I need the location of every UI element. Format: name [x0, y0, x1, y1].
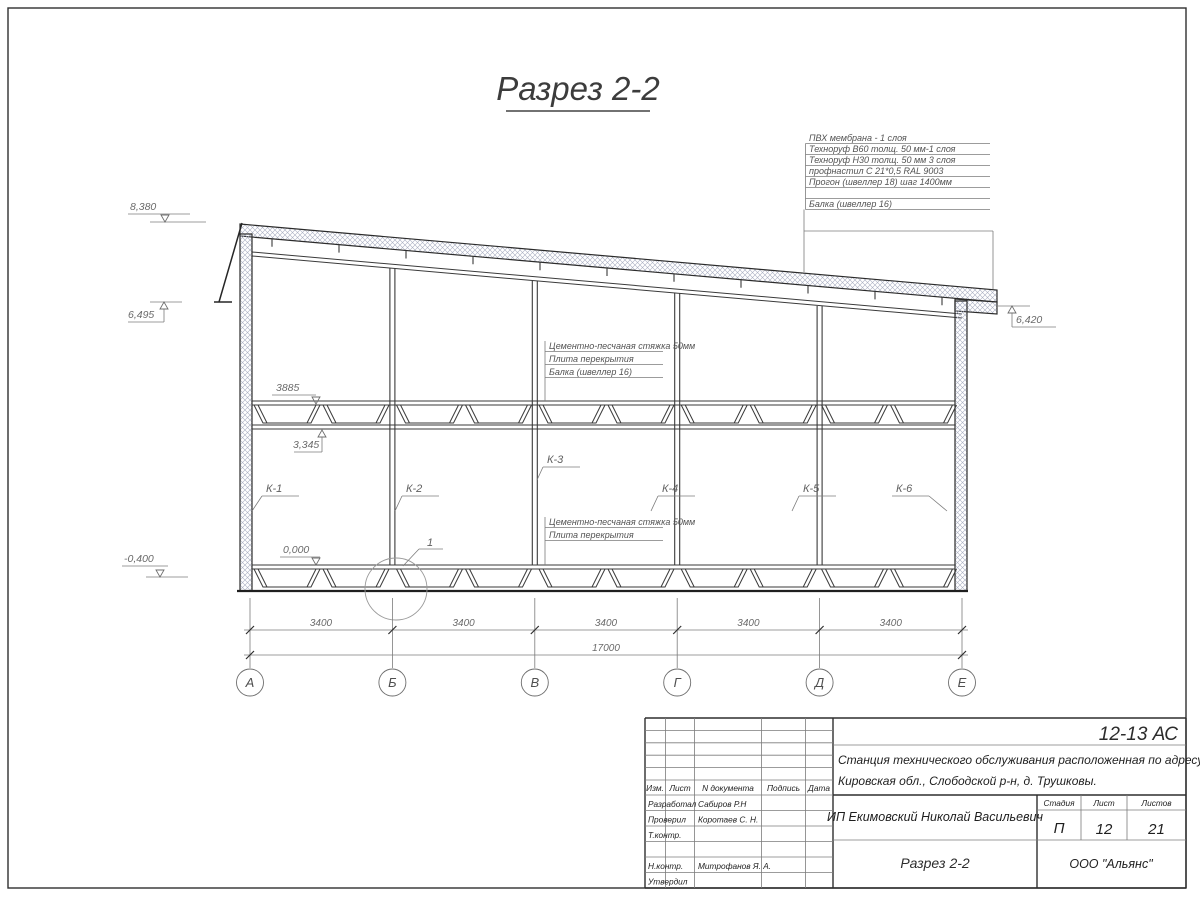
sheets-value: 21	[1147, 821, 1165, 838]
axis-label: В	[530, 675, 539, 690]
col-header-date: Дата	[807, 783, 830, 793]
floor-spec-callout: Цементно-песчаная стяжка 50мм Плита пере…	[545, 517, 695, 565]
axis-label: А	[245, 675, 255, 690]
sheet-header: Лист	[1092, 798, 1114, 808]
column-B	[390, 268, 395, 565]
roof-spec-line: Техноруф В60 толщ. 50 мм-1 слоя	[809, 144, 956, 154]
section-title: Разрез 2-2	[496, 70, 660, 111]
ceiling-spec-line: Балка (швеллер 16)	[549, 367, 632, 377]
left-eave-trim	[214, 223, 242, 302]
dim-bay: 3400	[737, 618, 760, 629]
stage-value: П	[1054, 820, 1065, 837]
ceiling-spec-line: Цементно-песчаная стяжка 50мм	[549, 341, 695, 351]
role-label: Разработал	[648, 799, 697, 809]
roof-band	[240, 224, 997, 302]
column-D	[817, 306, 822, 565]
dim-bay: 3400	[452, 618, 475, 629]
drawing-sheet: Разрез 2-2 ПВХ мембрана - 1 слоя Технору…	[0, 0, 1200, 900]
role-name: Коротаев С. Н.	[698, 815, 758, 825]
axis-bubbles: А Б В Г Д Е	[237, 669, 976, 696]
ceiling-screed	[252, 401, 955, 405]
column-label-k3: К-3	[547, 454, 564, 466]
sheets-header: Листов	[1140, 798, 1172, 808]
elevation-eave-left: 6,495	[128, 309, 154, 321]
elevation-beam: 3,345	[293, 439, 319, 451]
role-label: Проверил	[648, 815, 686, 825]
elevation-floor: 0,000	[283, 544, 309, 556]
role-name: Митрофанов Я. А.	[698, 861, 771, 871]
title-block: 12-13 АС Станция технического обслуживан…	[645, 718, 1200, 888]
floor-spec-line: Плита перекрытия	[549, 530, 634, 540]
purlin-ticks	[272, 239, 942, 305]
elevation-ceiling: 3885	[276, 382, 300, 394]
col-header-doc: N документа	[702, 783, 754, 793]
column-label-k4: К-4	[662, 483, 678, 495]
wall-right	[955, 301, 967, 591]
axis-label: Г	[674, 675, 682, 690]
role-name: Сабиров Р.Н	[698, 799, 746, 809]
role-label: Н.контр.	[648, 861, 683, 871]
floor-spec-line: Цементно-песчаная стяжка 50мм	[549, 517, 695, 527]
floor-screed	[252, 565, 955, 569]
sheet-name: Разрез 2-2	[900, 855, 970, 871]
detail-circle: 1	[365, 537, 443, 620]
ceiling-spec-line: Плита перекрытия	[549, 354, 634, 364]
detail-number: 1	[427, 537, 433, 549]
stage-header: Стадия	[1043, 798, 1075, 808]
axis-label: Д	[813, 675, 824, 690]
col-header-list: Лист	[668, 783, 690, 793]
project-name-line1: Станция технического обслуживания распол…	[838, 753, 1200, 767]
axis-label: Б	[388, 675, 397, 690]
dim-bay: 3400	[880, 618, 903, 629]
roof-spec-callout: ПВХ мембрана - 1 слоя Техноруф В60 толщ.…	[804, 133, 993, 289]
column-label-k2: К-2	[406, 483, 422, 495]
elevation-eave-right: 6,420	[1016, 314, 1042, 326]
dim-total: 17000	[592, 643, 620, 654]
wall-left	[240, 234, 252, 591]
doc-code: 12-13 АС	[1099, 724, 1178, 745]
roof-spec-line: Прогон (швеллер 18) шаг 1400мм	[809, 177, 952, 187]
column-label-k6: К-6	[896, 483, 913, 495]
sheet-value: 12	[1096, 821, 1113, 838]
roof-spec-line: Балка (швеллер 16)	[809, 199, 892, 209]
dimension-lines: 3400 3400 3400 3400 3400 17000	[244, 598, 968, 668]
project-name-line2: Кировская обл., Слободской р-н, д. Трушк…	[838, 774, 1097, 788]
elevation-roof-high: 8,380	[130, 201, 156, 213]
roof-spec-line: профнастил С 21*0,5 RAL 9003	[809, 166, 943, 176]
column-label-k1: К-1	[266, 483, 282, 495]
elevation-ground: -0,400	[124, 553, 154, 565]
role-label: Утвердил	[647, 877, 688, 887]
axis-label: Е	[958, 675, 967, 690]
dim-bay: 3400	[310, 618, 333, 629]
role-label: Т.контр.	[648, 830, 681, 840]
ceiling-spec-callout: Цементно-песчаная стяжка 50мм Плита пере…	[545, 341, 695, 401]
company-name: ООО "Альянс"	[1069, 857, 1153, 871]
roof-spec-line: Техноруф Н30 толщ. 50 мм 3 слоя	[809, 155, 956, 165]
col-header-izm: Изм.	[646, 783, 664, 793]
section-title-text: Разрез 2-2	[496, 70, 660, 107]
ceiling-beam	[252, 425, 955, 429]
column-labels: К-1 К-2 К-3 К-4 К-5 К-6	[252, 454, 947, 511]
column-V	[532, 281, 537, 565]
column-label-k5: К-5	[803, 483, 820, 495]
dim-bay: 3400	[595, 618, 618, 629]
roof-spec-line: ПВХ мембрана - 1 слоя	[809, 133, 907, 143]
col-header-sign: Подпись	[767, 783, 800, 793]
client-name: ИП Екимовский Николай Васильевич	[827, 810, 1043, 824]
